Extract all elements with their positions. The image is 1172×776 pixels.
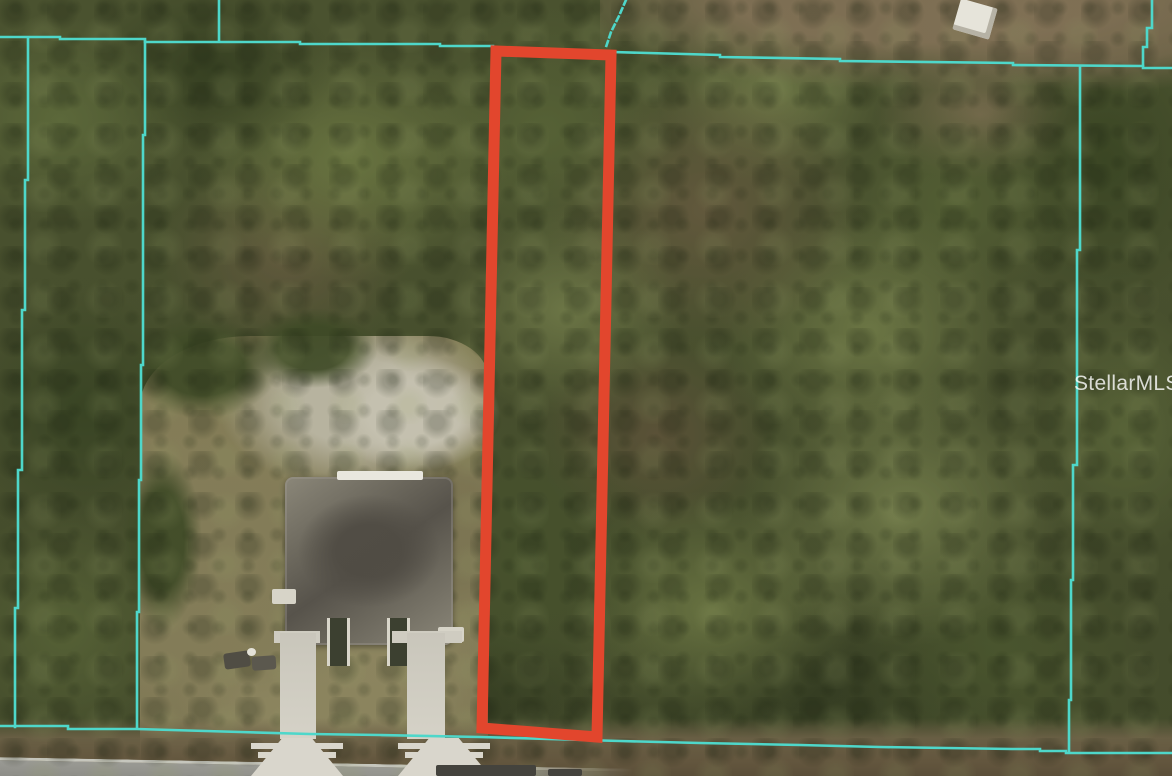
parcel-line-segment xyxy=(137,41,145,727)
parcel-line-segment xyxy=(1069,66,1080,752)
parcel-line-segment xyxy=(613,52,1172,68)
parcel-line-segment xyxy=(606,0,626,47)
aerial-parcel-photo: StellarMLS xyxy=(0,0,1172,776)
highlighted-parcel-outline xyxy=(482,51,611,737)
boundary-overlay xyxy=(0,0,1172,776)
parcel-line-segment xyxy=(1143,0,1152,65)
parcel-line-segment xyxy=(15,38,28,727)
watermark-text: StellarMLS xyxy=(1074,372,1172,396)
parcel-boundary-lines xyxy=(0,0,1172,753)
parcel-line-segment xyxy=(0,37,493,46)
